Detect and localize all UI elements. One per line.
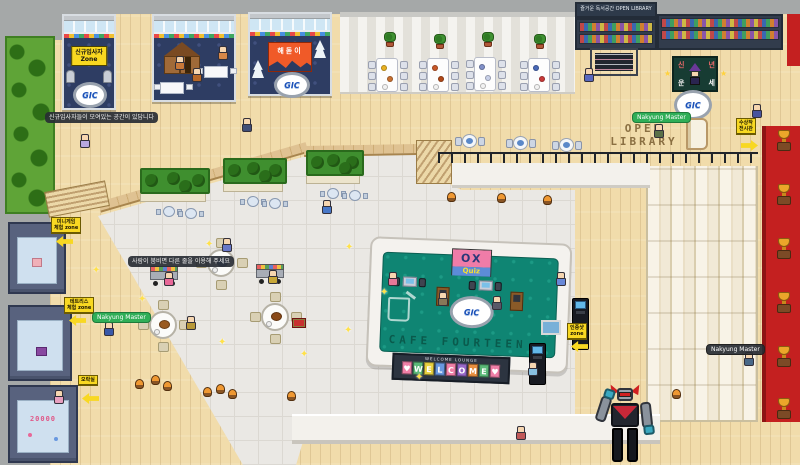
booth-table [204,66,228,78]
minigame-room-2[interactable] [8,305,72,381]
side-table [262,198,288,210]
statue-decoration [66,70,75,83]
booth-glass [250,19,330,32]
character-avatar[interactable] [528,362,538,377]
sparkle-effect: ✦ [218,338,226,348]
robot-leg [627,428,638,462]
trophy [776,184,792,211]
welcome-tile: M [468,364,478,377]
character-avatar[interactable] [752,104,762,119]
virtual-office-map: 신규입사자Zone GIC 해돋이 GIC [0,0,800,465]
character-avatar[interactable] [492,296,502,311]
welcome-tile: C [446,363,456,376]
photo-frame [541,320,561,335]
npc-stool-character[interactable] [543,195,552,205]
sparkle-effect: ✦ [344,326,352,336]
room-floor [17,320,63,371]
bookshelf [657,14,783,50]
character-avatar[interactable] [164,272,174,287]
red-banner [787,14,800,66]
booth-bench [230,68,237,74]
red-carpet [762,126,800,422]
welcome-tile: E [479,364,489,377]
npc-stool-character[interactable] [287,391,296,401]
bookshelf [575,18,657,50]
room-floor [17,237,57,284]
garland-decoration [250,32,330,36]
coffee-cup-floor-art [387,297,410,322]
deck-railing [438,152,758,163]
room-rug [32,258,42,267]
booth-bench [186,84,193,90]
character-avatar[interactable] [175,56,185,71]
welcome-tile: ♥ [490,365,500,378]
minigame-room-3[interactable]: 20000 [8,385,78,463]
character-avatar[interactable] [54,390,64,405]
welcome-sign: WELCOME LOUNGE ♥WELCOME♥ [392,353,511,385]
sparkle-effect: ✦ [92,266,100,276]
character-avatar[interactable] [268,270,278,285]
npc-stool-character[interactable] [135,379,144,389]
gic-logo-rug: GIC [274,72,310,98]
cafe-chair[interactable] [495,282,502,291]
library-shelf-header: 즐거운 독서공간 OPEN LIBRARY [575,2,657,18]
npc-stool-character[interactable] [163,381,172,391]
booth-bench [154,84,161,90]
confetti [54,437,58,441]
direction-sign-label[interactable]: 테트리스체험 zone [64,297,94,313]
corner-wall [0,0,62,40]
dining-table [528,58,550,92]
star-decoration: ★ [720,70,727,78]
deck-table [506,136,536,152]
player-nametag: Nakyung Master [92,312,151,323]
new-employee-zone-sign: 신규입사자Zone [71,46,107,66]
robot-torso [611,403,639,427]
character-avatar[interactable] [192,68,202,83]
character-avatar[interactable] [80,134,90,149]
gic-logo-rug: GIC [73,82,107,108]
character-avatar[interactable] [388,272,398,287]
welcome-tile: ♥ [402,361,412,374]
character-avatar[interactable] [186,316,196,331]
booth-table [160,82,184,94]
sunrise-banner: 해돋이 [268,42,312,72]
library-stacks [646,166,758,422]
npc-stool-character[interactable] [672,389,681,399]
statue-decoration [103,70,112,83]
character-avatar[interactable] [222,238,232,253]
npc-stool-character[interactable] [151,375,160,385]
ox-quiz-sign[interactable]: OXQuiz [451,248,492,277]
npc-stool-character[interactable] [216,384,225,394]
npc-stool-character[interactable] [228,389,237,399]
round-table [138,300,190,352]
potted-plant [534,34,546,50]
book-row [661,30,779,40]
cafe-desk [479,280,493,291]
character-avatar[interactable] [322,200,332,215]
character-avatar[interactable] [556,272,566,287]
npc-stool-character[interactable] [447,192,456,202]
side-table [178,208,204,220]
character-avatar[interactable] [654,124,664,139]
sparkle-effect: ✦ [345,243,353,253]
booth-glass [154,21,234,34]
room-floor: 20000 [17,400,69,453]
dining-table [376,58,398,92]
confetti [28,433,32,437]
direction-sign-label[interactable]: 미니게임체험 zone [51,217,81,233]
booth-new-employee-zone[interactable]: 신규입사자Zone GIC [62,14,116,110]
garland-decoration [64,34,114,38]
booth-glass [64,21,114,34]
open-library-floor-text: OPENLIBRARY [598,122,690,148]
coffee-counter[interactable] [510,292,524,311]
direction-sign-label[interactable]: 인증샷zone [567,323,587,339]
trophy [776,292,792,319]
robot-leg [612,428,623,462]
player-nametag: Nakyung Master [706,344,765,355]
sparkle-effect: ✦ [380,288,388,298]
snow-tree [252,60,264,78]
cafe-chair[interactable] [419,278,426,287]
sparkle-effect: ✦ [205,240,213,250]
menu-blackboard [590,48,638,76]
score-display: 20000 [18,415,68,423]
garden-planter [223,158,287,192]
robot-head [617,388,633,401]
arcade-object[interactable] [36,347,47,356]
dining-table [427,58,449,92]
book-row [661,18,779,28]
cafe-desk [403,276,417,287]
garden-planter [306,150,364,184]
character-avatar[interactable] [438,292,448,307]
star-decoration: ★ [664,70,671,78]
booth-floor: 신규입사자Zone GIC [64,40,114,108]
side-table [342,190,368,202]
welcome-tile: O [457,363,467,376]
npc-stool-character[interactable] [203,387,212,397]
npc-stool-character[interactable] [497,193,506,203]
gift-box [292,318,306,328]
potted-plant [482,32,494,48]
garden-planter [140,168,210,202]
garden-hedge [5,36,55,214]
character-avatar[interactable] [516,426,526,441]
trophy [776,130,792,157]
deck-table [552,138,582,154]
ledge-wall [452,163,650,188]
character-avatar[interactable] [104,322,114,337]
cafe-floor-text: CAFE FOURTEEN [388,333,526,351]
sparkle-effect: ✦ [300,350,308,360]
robot-character[interactable] [596,386,654,465]
garland-decoration [154,34,234,38]
character-avatar[interactable] [242,118,252,133]
direction-sign-label[interactable]: 오락실 [78,375,98,385]
trophy [776,346,792,373]
sparkle-effect: ✦ [415,373,423,383]
booth-floor: 해돋이 GIC [250,38,330,94]
new-year-fortune-board[interactable]: 신년 운세 [672,56,718,92]
potted-plant [384,32,396,48]
map-tooltip: 신규입사자들이 모여있는 공간이 있답니다 [45,112,158,123]
snow-tree [314,40,326,58]
mountain-graphic [269,59,311,71]
potted-plant [434,34,446,50]
trophy [776,238,792,265]
cafe-chair[interactable] [469,281,476,290]
character-avatar[interactable] [218,46,228,61]
character-avatar[interactable] [584,68,594,83]
map-tooltip: 사람이 붐비면 다른 줄을 이용해 주세요 [128,256,234,267]
dining-table [474,57,496,91]
deck-table [455,134,485,150]
robot-arm [640,401,654,428]
book-row [579,34,653,44]
player-nametag: Nakyung Master [632,112,691,123]
direction-sign-label[interactable]: 수상작전시관 [736,118,756,134]
sparkle-effect: ✦ [138,295,146,305]
welcome-tile: L [435,362,445,375]
booth-sunrise[interactable]: 해돋이 GIC [248,12,332,96]
robot-arm [594,395,612,423]
trophy [776,398,792,425]
book-row [579,22,653,32]
welcome-tile: E [424,362,434,375]
gic-logo-rug: GIC [449,295,494,329]
